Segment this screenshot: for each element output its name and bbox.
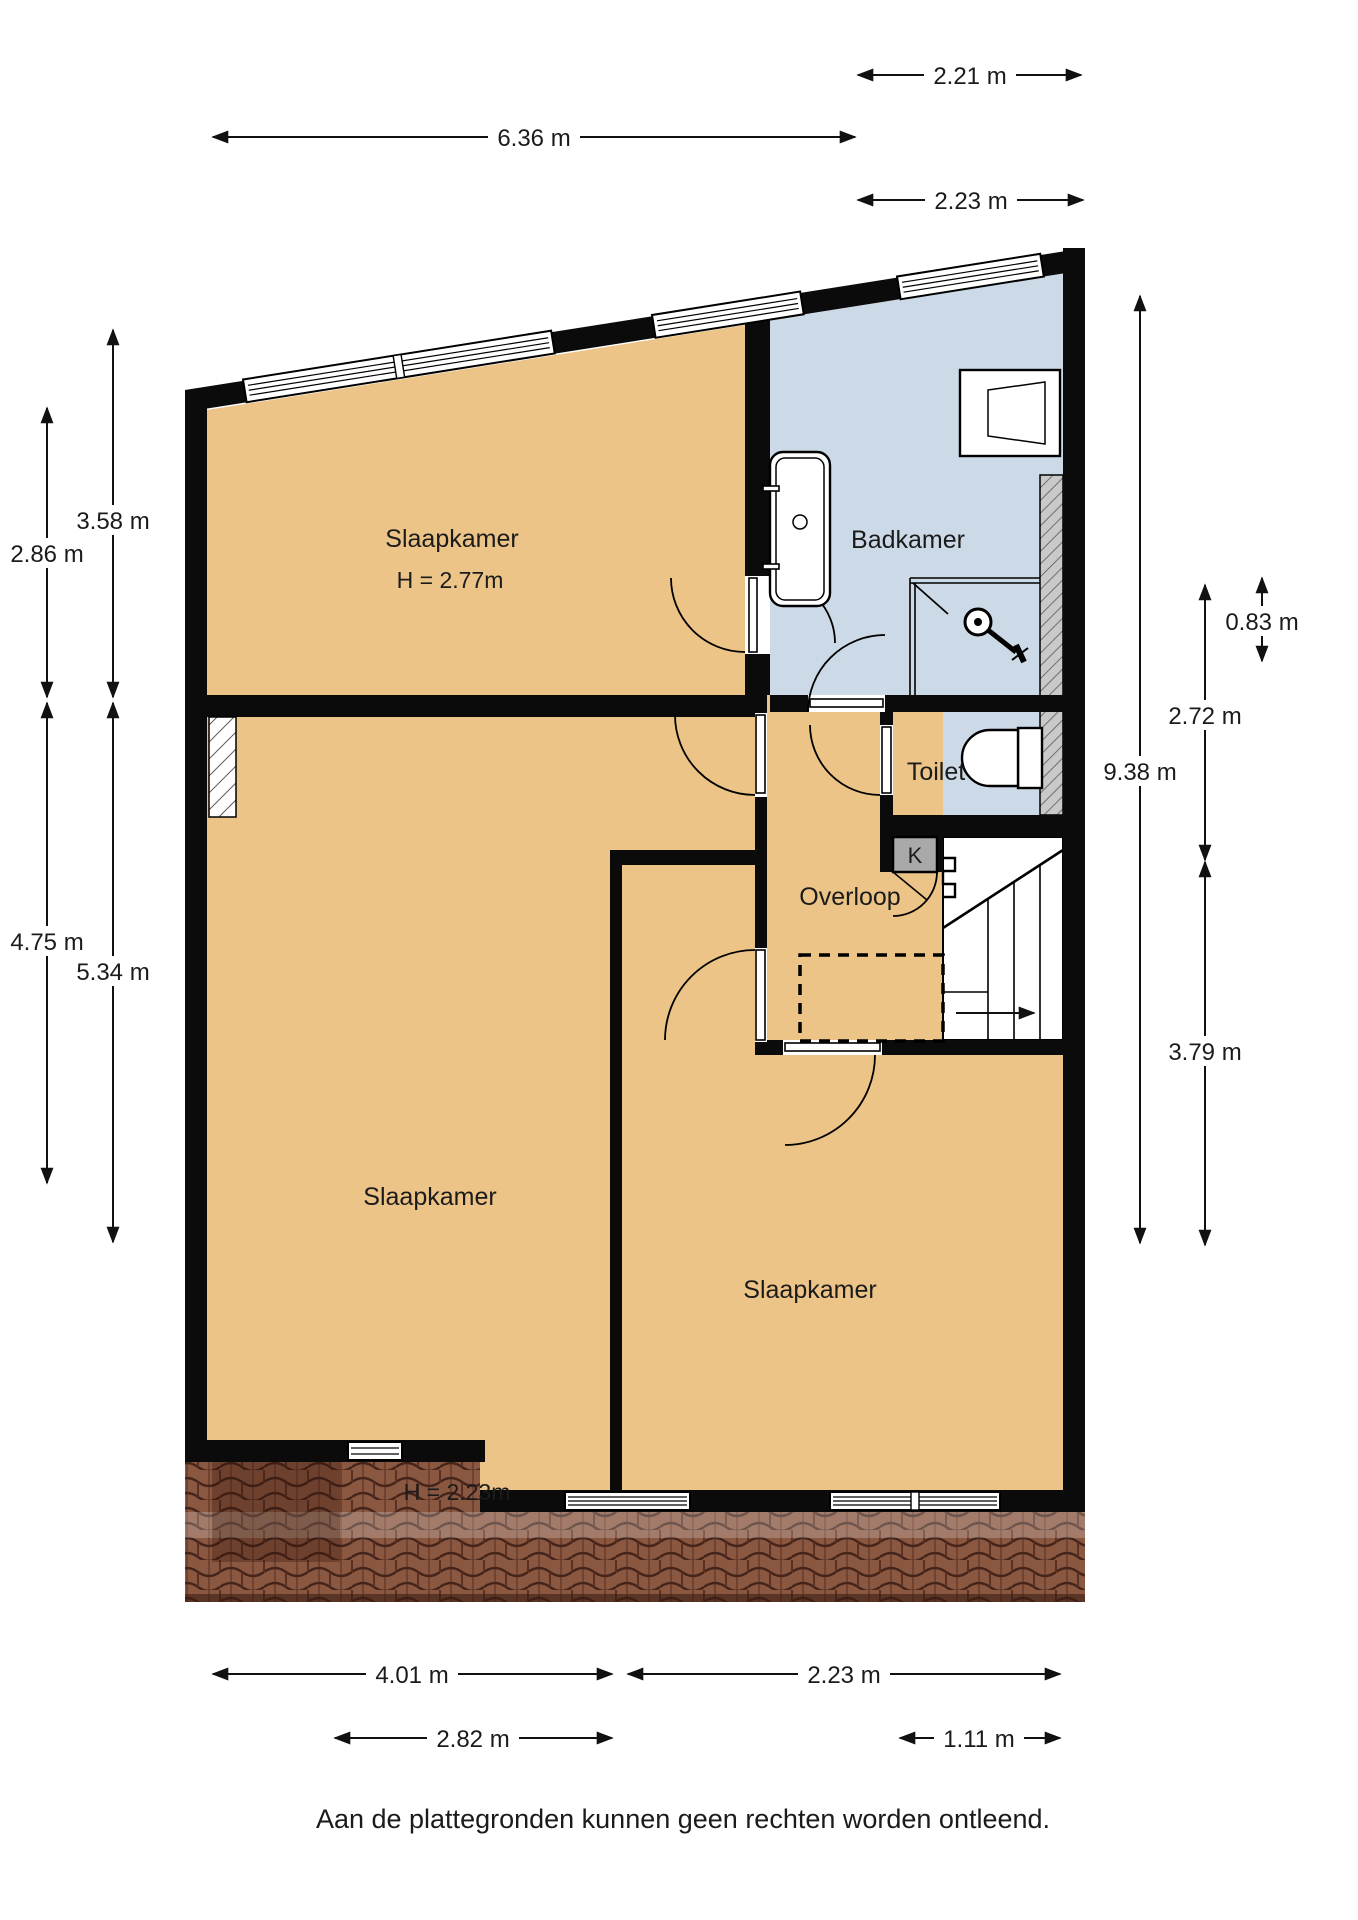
dimension-bottom-1-11m: 1.11 m xyxy=(900,1723,1060,1753)
dimension-left-4-75m: 4.75 m xyxy=(2,703,93,1183)
dimension-right-3-79m: 3.79 m xyxy=(1159,862,1251,1245)
label-badkamer: Badkamer xyxy=(851,526,965,554)
dimension-top-6-36m: 6.36 m xyxy=(213,122,855,152)
chimney-niche xyxy=(209,717,236,817)
window-bottom-small xyxy=(348,1442,402,1460)
bathtub xyxy=(763,452,830,606)
label-slaapkamer-right: Slaapkamer xyxy=(743,1276,876,1304)
dimension-top-2-23m: 2.23 m xyxy=(858,185,1083,215)
dimension-left-5-34m: 5.34 m xyxy=(68,703,159,1242)
dimension-left-2-86m: 2.86 m xyxy=(2,408,93,697)
dimension-top-2-21m: 2.21 m xyxy=(858,60,1081,90)
svg-text:2.72 m: 2.72 m xyxy=(1168,703,1241,730)
dimension-bottom-2-23m: 2.23 m xyxy=(628,1659,1060,1689)
svg-text:0.83 m: 0.83 m xyxy=(1225,609,1298,636)
duct-shaft xyxy=(1040,475,1063,815)
svg-text:3.58 m: 3.58 m xyxy=(76,508,149,535)
window-bottom-left xyxy=(565,1492,690,1510)
svg-text:2.86 m: 2.86 m xyxy=(10,541,83,568)
dimension-right-0-83m: 0.83 m xyxy=(1216,578,1308,661)
room-overloop xyxy=(755,695,943,1055)
floorplan-canvas: Slaapkamer H = 2.77m Badkamer Toilet Ove… xyxy=(0,0,1358,1920)
dimension-bottom-4-01m: 4.01 m xyxy=(213,1659,612,1689)
stairs xyxy=(943,837,1063,1040)
svg-text:1.11 m: 1.11 m xyxy=(943,1726,1015,1753)
label-slaapkamer-mid: Slaapkamer xyxy=(363,1183,496,1211)
svg-text:2.23 m: 2.23 m xyxy=(934,188,1007,215)
window-bottom-right xyxy=(830,1492,1000,1510)
label-slaapkamer-top: Slaapkamer xyxy=(385,525,518,553)
svg-text:4.75 m: 4.75 m xyxy=(10,929,83,956)
sink xyxy=(960,370,1060,456)
svg-text:6.36 m: 6.36 m xyxy=(497,125,570,152)
svg-text:5.34 m: 5.34 m xyxy=(76,959,149,986)
svg-text:2.23 m: 2.23 m xyxy=(807,1662,880,1689)
label-overloop: Overloop xyxy=(799,883,900,911)
svg-text:2.82 m: 2.82 m xyxy=(436,1726,509,1753)
dimension-right-9-38m: 9.38 m xyxy=(1094,296,1186,1243)
dimension-bottom-2-82m: 2.82 m xyxy=(335,1723,612,1753)
svg-text:4.01 m: 4.01 m xyxy=(375,1662,448,1689)
label-slaapkamer-top-height: H = 2.77m xyxy=(397,567,504,593)
roof-dark-block xyxy=(212,1462,340,1562)
svg-text:9.38 m: 9.38 m xyxy=(1103,759,1176,786)
disclaimer-text: Aan de plattegronden kunnen geen rechten… xyxy=(316,1804,1050,1834)
floorplan-page: Slaapkamer H = 2.77m Badkamer Toilet Ove… xyxy=(0,0,1358,1920)
label-slaapkamer-right-height: H = 2.23m xyxy=(404,1479,511,1505)
svg-text:3.79 m: 3.79 m xyxy=(1168,1039,1241,1066)
toilet-fixture xyxy=(962,728,1042,788)
dimension-left-3-58m: 3.58 m xyxy=(68,330,159,697)
label-toilet: Toilet xyxy=(907,758,965,786)
label-kast: K xyxy=(908,843,923,868)
svg-text:2.21 m: 2.21 m xyxy=(933,63,1006,90)
